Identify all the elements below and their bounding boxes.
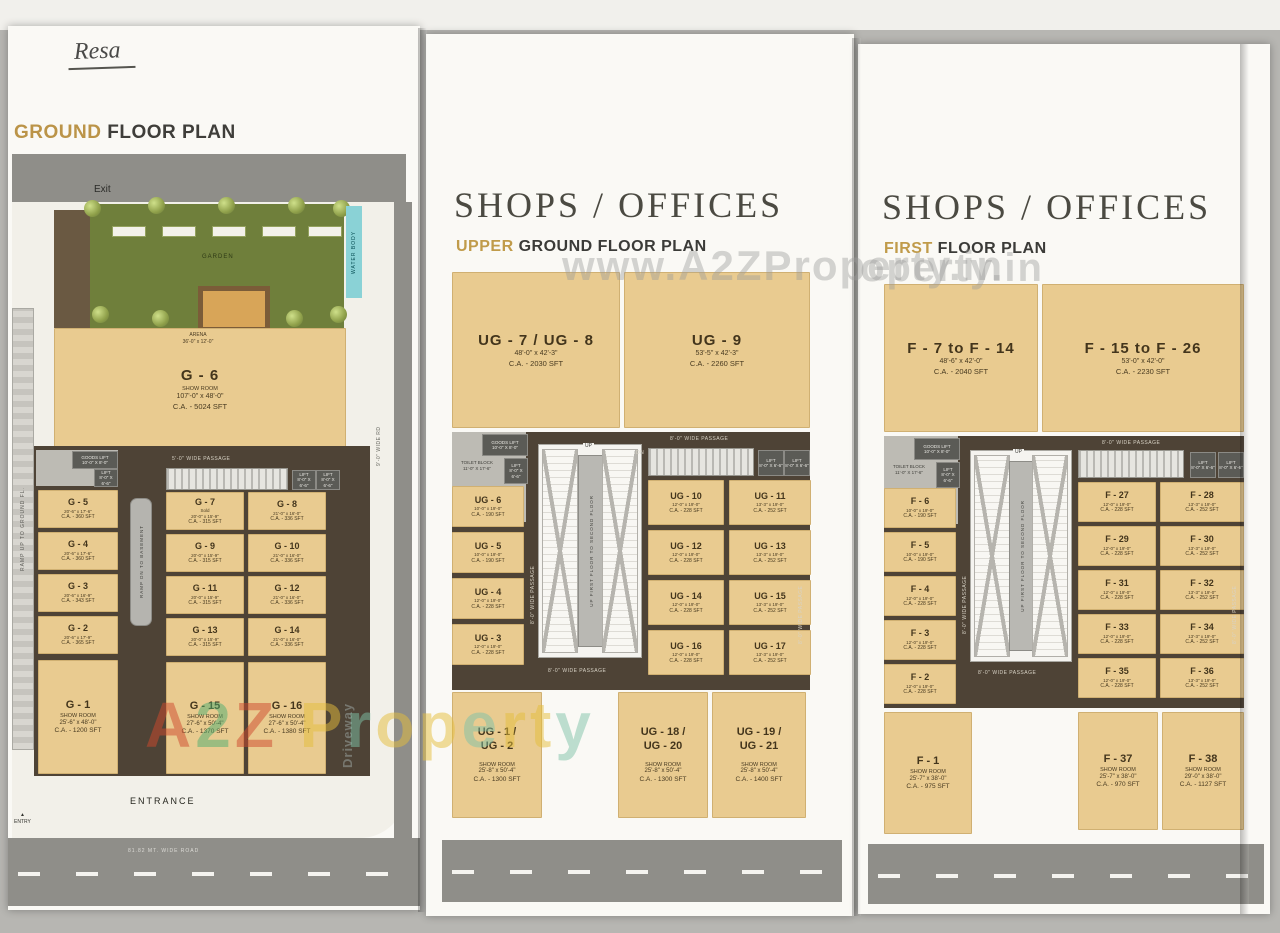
handwritten-note: Resa	[67, 37, 135, 70]
unit-id: G - 6	[181, 367, 219, 386]
entry-label: ▲ENTRY	[14, 812, 31, 826]
first-grid-units: F - 2712'-0" x 19'-0"C.A. - 228 SFTF - 2…	[1078, 482, 1244, 698]
unit-area: C.A. - 252 SFT	[753, 608, 786, 614]
unit-ug9: UG - 9 53'-5" x 42'-3" C.A. - 2260 SFT	[624, 272, 810, 428]
unit-ug-6: UG - 610'-0" x 19'-0"C.A. - 190 SFT	[452, 486, 524, 527]
unit-g-9: G - 920'-0" x 15'-9"C.A. - 315 SFT	[166, 534, 244, 572]
unit-uid: F - 31	[1105, 578, 1129, 589]
unit-area: C.A. - 228 SFT	[1100, 639, 1133, 645]
tree-icon	[286, 310, 303, 327]
unit-sub: SHOW ROOM	[60, 713, 96, 720]
unit-area: C.A. - 190 SFT	[471, 512, 504, 518]
unit-g-14: G - 1421'-0" x 16'-0"C.A. - 336 SFT	[248, 618, 326, 656]
bench	[162, 226, 196, 237]
unit-g-3: G - 320'-6" x 16'-9"C.A. - 343 SFT	[38, 574, 118, 612]
unit-area: C.A. - 228 SFT	[669, 508, 702, 514]
unit-uid: G - 2	[68, 623, 88, 634]
unit-area: C.A. - 360 SFT	[61, 556, 94, 562]
escalator	[1078, 450, 1184, 478]
lift: LIFT 8'-0" X 6'-6"	[94, 469, 118, 487]
unit-id2: UG - 20	[644, 740, 683, 754]
unit-area: C.A. - 252 SFT	[753, 658, 786, 664]
unit-area: C.A. - 975 SFT	[906, 783, 949, 791]
unit-area: C.A. - 1300 SFT	[474, 776, 521, 784]
unit-uid: G - 9	[195, 541, 215, 552]
unit-area: C.A. - 252 SFT	[1185, 551, 1218, 557]
unit-dims: 48'-6" x 42'-0"	[939, 358, 982, 367]
unit-area: C.A. - 252 SFT	[1185, 595, 1218, 601]
unit-uid: F - 35	[1105, 666, 1129, 677]
bench	[212, 226, 246, 237]
unit-uid: G - 10	[274, 541, 299, 552]
unit-g6: G - 6 SHOW ROOM 107'-0" x 48'-0" C.A. - …	[54, 328, 346, 450]
unit-area: C.A. - 336 SFT	[270, 642, 303, 648]
up-label: UP	[1013, 449, 1024, 455]
unit-uid: UG - 4	[475, 587, 502, 598]
unit-uid: UG - 10	[670, 491, 702, 502]
unit-f-5: F - 510'-0" x 19'-0"C.A. - 190 SFT	[884, 532, 956, 572]
first-floor-panel: SHOPS / OFFICES FIRST FLOOR PLAN F - 7 t…	[858, 44, 1270, 914]
unit-ug19-ug21: UG - 19 / UG - 21 SHOW ROOM 25'-8" x 50'…	[712, 692, 806, 818]
unit-area: C.A. - 336 SFT	[270, 600, 303, 606]
unit-area: C.A. - 228 SFT	[669, 558, 702, 564]
unit-f-36: F - 3613'-3" x 19'-0"C.A. - 252 SFT	[1160, 658, 1244, 698]
exit-label: Exit	[94, 184, 111, 195]
road-dashes	[878, 874, 1254, 878]
unit-uid: G - 4	[68, 539, 88, 550]
lift: LIFT 8'-0" X 6'-6"	[316, 470, 340, 490]
road-label: 81.82 MT. WIDE ROAD	[128, 848, 199, 854]
upper-grid-units: UG - 1012'-0" x 19'-0"C.A. - 228 SFTUG -…	[648, 480, 811, 675]
passage-label: 8'-0" WIDE PASSAGE	[1102, 440, 1160, 446]
unit-area: C.A. - 2030 SFT	[509, 359, 563, 368]
unit-uid: F - 28	[1190, 490, 1214, 501]
unit-area: C.A. - 1400 SFT	[736, 776, 783, 784]
unit-uid: G - 5	[68, 497, 88, 508]
unit-g-11: G - 1120'-0" x 15'-9"C.A. - 315 SFT	[166, 576, 244, 614]
unit-area: C.A. - 2230 SFT	[1116, 367, 1170, 376]
unit-id: UG - 7 / UG - 8	[478, 332, 594, 351]
unit-dims: 25'-7" x 38'-0"	[910, 776, 947, 784]
unit-area: C.A. - 228 SFT	[1100, 683, 1133, 689]
garden-area: GARDEN	[90, 204, 344, 330]
unit-area: C.A. - 190 SFT	[903, 513, 936, 519]
unit-area: C.A. - 336 SFT	[270, 558, 303, 564]
unit-area: C.A. - 228 SFT	[1100, 551, 1133, 557]
road-dashes	[18, 872, 410, 876]
unit-g1: G - 1 SHOW ROOM 25'-6" x 48'-0" C.A. - 1…	[38, 660, 118, 774]
bench	[308, 226, 342, 237]
unit-dims: 107'-0" x 48'-0"	[177, 393, 224, 402]
passage-label: 8'-0" WIDE PASSAGE	[978, 670, 1036, 676]
passage-label: 8'-0" WIDE PASSAGE	[530, 504, 536, 624]
unit-uid: UG - 11	[754, 491, 785, 502]
unit-id: UG - 18 /	[641, 726, 686, 740]
brand-letter: t	[530, 689, 555, 761]
side-road-label: 9'-0" WIDE RD	[376, 376, 382, 466]
unit-id: F - 7 to F - 14	[907, 340, 1015, 359]
unit-area: C.A. - 360 SFT	[61, 514, 94, 520]
unit-area: C.A. - 252 SFT	[753, 508, 786, 514]
tree-icon	[330, 306, 347, 323]
unit-area: C.A. - 252 SFT	[1185, 639, 1218, 645]
unit-f-3: F - 312'-0" x 19'-0"C.A. - 228 SFT	[884, 620, 956, 660]
unit-uid: UG - 3	[475, 633, 502, 644]
unit-sub: SHOW ROOM	[645, 762, 681, 769]
stage	[198, 286, 270, 332]
unit-uid: G - 14	[274, 625, 299, 636]
staircase: UP FIRST FLOOR TO SECOND FLOOR UP	[970, 450, 1072, 662]
unit-area: C.A. - 252 SFT	[1185, 683, 1218, 689]
unit-area: C.A. - 2040 SFT	[934, 367, 988, 376]
unit-id: F - 1	[917, 755, 940, 769]
goods-lift: GOODS LIFT 10'-0" X 8'-0"	[72, 451, 118, 469]
unit-ug-4: UG - 412'-0" x 19'-0"C.A. - 228 SFT	[452, 578, 524, 619]
unit-area: C.A. - 228 SFT	[669, 608, 702, 614]
upper-left-units: UG - 610'-0" x 19'-0"C.A. - 190 SFTUG - …	[452, 486, 524, 665]
unit-area: C.A. - 228 SFT	[669, 658, 702, 664]
unit-ug-10: UG - 1012'-0" x 19'-0"C.A. - 228 SFT	[648, 480, 724, 525]
unit-g-7: G - 7Sold20'-0" x 15'-9"C.A. - 315 SFT	[166, 492, 244, 530]
unit-area: C.A. - 228 SFT	[471, 650, 504, 656]
unit-dims: 29'-0" x 38'-0"	[1185, 774, 1222, 782]
unit-f-29: F - 2912'-0" x 19'-0"C.A. - 228 SFT	[1078, 526, 1156, 566]
basement-ramp: RAMP DN TO BASEMENT	[130, 498, 152, 626]
unit-uid: F - 3	[911, 628, 930, 639]
unit-area: C.A. - 228 SFT	[1100, 507, 1133, 513]
unit-area: C.A. - 315 SFT	[188, 519, 221, 525]
unit-dims: 48'-0" x 42'-3"	[514, 350, 557, 359]
ramp-label: UP FIRST FLOOR TO SECOND FLOOR	[1020, 500, 1025, 612]
ground-floor-panel: Resa GROUND FLOOR PLAN Exit GAR	[8, 26, 420, 910]
top-road	[12, 154, 406, 202]
unit-g-5: G - 520'-6" x 17'-6"C.A. - 360 SFT	[38, 490, 118, 528]
brand-letter: P	[300, 689, 347, 761]
unit-uid: F - 27	[1105, 490, 1129, 501]
basement-ramp-label: RAMP DN TO BASEMENT	[139, 525, 144, 598]
road-dashes	[452, 870, 832, 874]
unit-area: C.A. - 1200 SFT	[55, 727, 102, 735]
tree-icon	[152, 310, 169, 327]
unit-uid: F - 2	[911, 672, 930, 683]
goods-lift: GOODS LIFT 10'-0" X 8'-0"	[482, 434, 528, 456]
unit-uid: F - 30	[1190, 534, 1214, 545]
unit-uid: UG - 17	[754, 641, 786, 652]
unit-f-27: F - 2712'-0" x 19'-0"C.A. - 228 SFT	[1078, 482, 1156, 522]
unit-area: C.A. - 315 SFT	[188, 600, 221, 606]
garden-label: GARDEN	[202, 254, 234, 260]
unit-uid: G - 11	[193, 583, 218, 594]
unit-uid: UG - 13	[754, 541, 786, 552]
unit-sub: SHOW ROOM	[1185, 767, 1221, 774]
brand-letter: r	[501, 689, 530, 761]
unit-area: C.A. - 336 SFT	[270, 516, 303, 522]
stair-flight	[1032, 455, 1068, 657]
scanned-floorplan-page: Resa GROUND FLOOR PLAN Exit GAR	[0, 0, 1280, 933]
unit-area: C.A. - 2260 SFT	[690, 359, 744, 368]
subtitle-accent: UPPER	[456, 238, 514, 255]
bench	[112, 226, 146, 237]
escalator	[166, 468, 288, 490]
page-fold	[1240, 44, 1249, 914]
lift: LIFT 8'-0" X 6'-6"	[504, 458, 528, 484]
unit-f-2: F - 212'-0" x 19'-0"C.A. - 228 SFT	[884, 664, 956, 704]
unit-g-4: G - 420'-6" x 17'-6"C.A. - 360 SFT	[38, 532, 118, 570]
unit-uid: F - 34	[1190, 622, 1214, 633]
unit-uid: F - 6	[911, 496, 930, 507]
lift: LIFT 8'-0" X 6'-6"	[936, 462, 960, 488]
first-left-units: F - 610'-0" x 19'-0"C.A. - 190 SFTF - 51…	[884, 488, 956, 704]
unit-g-13: G - 1320'-0" x 15'-9"C.A. - 315 SFT	[166, 618, 244, 656]
left-ramp-label: RAMP UP TO GROUND FL.	[20, 487, 26, 571]
stair-ramp: UP FIRST FLOOR TO SECOND FLOOR	[578, 455, 604, 647]
unit-uid: F - 36	[1190, 666, 1214, 677]
goods-lift: GOODS LIFT 10'-0" X 8'-0"	[914, 438, 960, 460]
unit-dims: 25'-8" x 50'-4"	[479, 768, 516, 776]
bench	[262, 226, 296, 237]
arena-label: ARENA 36'-0" x 12'-0"	[148, 332, 248, 345]
unit-uid: F - 32	[1190, 578, 1214, 589]
unit-ug-11: UG - 1113'-3" x 19'-0"C.A. - 252 SFT	[729, 480, 811, 525]
unit-ug-12: UG - 1212'-0" x 19'-0"C.A. - 228 SFT	[648, 530, 724, 575]
unit-dims: 25'-6" x 48'-0"	[60, 720, 97, 728]
watermark-brand: A2Z Property	[145, 688, 595, 762]
unit-f38: F - 38 SHOW ROOM 29'-0" x 38'-0" C.A. - …	[1162, 712, 1244, 830]
unit-uid: UG - 12	[670, 541, 702, 552]
unit-id: G - 1	[66, 699, 90, 713]
passage-label: 8'-0" WIDE PASSAGE	[798, 524, 804, 644]
stair-flight	[542, 449, 578, 653]
unit-id: UG - 9	[692, 332, 742, 351]
ground-floor-title: GROUND FLOOR PLAN	[14, 122, 236, 144]
unit-area: C.A. - 190 SFT	[471, 558, 504, 564]
unit-dims: 53'-5" x 42'-3"	[695, 350, 738, 359]
toilet-block-label: TOILET BLOCK 11'-0" X 17'-6"	[453, 460, 501, 472]
brand-letter: p	[418, 689, 461, 761]
unit-ug-5: UG - 510'-0" x 19'-0"C.A. - 190 SFT	[452, 532, 524, 573]
stair-flight	[974, 455, 1010, 657]
stair-flight	[602, 449, 638, 653]
unit-area: C.A. - 228 SFT	[471, 604, 504, 610]
unit-uid: F - 4	[911, 584, 930, 595]
unit-area: C.A. - 228 SFT	[1100, 595, 1133, 601]
unit-uid: G - 3	[68, 581, 88, 592]
unit-dims: 25'-8" x 50'-4"	[645, 768, 682, 776]
passage-label: 8'-0" WIDE PASSAGE	[962, 514, 968, 634]
dn-label: DN	[636, 450, 644, 456]
unit-uid: UG - 16	[670, 641, 702, 652]
unit-f1: F - 1 SHOW ROOM 25'-7" x 38'-0" C.A. - 9…	[884, 712, 972, 834]
unit-f-6: F - 610'-0" x 19'-0"C.A. - 190 SFT	[884, 488, 956, 528]
unit-uid: G - 8	[277, 499, 297, 510]
unit-area: C.A. - 5024 SFT	[173, 402, 227, 411]
watermark-url-fragment: operty.in	[860, 246, 1044, 291]
tree-icon	[288, 197, 305, 214]
brand-letter: o	[375, 689, 418, 761]
lift: LIFT 8'-0" X 6'-6"	[292, 470, 316, 490]
shops-offices-title: SHOPS / OFFICES	[882, 186, 1211, 228]
unit-area: C.A. - 228 SFT	[903, 645, 936, 651]
lift: LIFT 8'-0" X 6'-6"	[784, 450, 810, 476]
title-accent: GROUND	[14, 122, 101, 143]
unit-ug18-ug20: UG - 18 / UG - 20 SHOW ROOM 25'-8" x 50'…	[618, 692, 708, 818]
unit-area: C.A. - 365 SFT	[61, 640, 94, 646]
unit-f-4: F - 412'-0" x 19'-0"C.A. - 228 SFT	[884, 576, 956, 616]
unit-g-12: G - 1221'-0" x 16'-0"C.A. - 336 SFT	[248, 576, 326, 614]
unit-f37: F - 37 SHOW ROOM 25'-7" x 38'-0" C.A. - …	[1078, 712, 1158, 830]
unit-uid: F - 29	[1105, 534, 1129, 545]
passage-label: 8'-0" WIDE PASSAGE	[1232, 524, 1238, 644]
unit-ug-3: UG - 312'-0" x 19'-0"C.A. - 228 SFT	[452, 624, 524, 665]
tree-icon	[84, 200, 101, 217]
ramp-label: UP FIRST FLOOR TO SECOND FLOOR	[589, 495, 594, 607]
unit-dims: 25'-7" x 38'-0"	[1100, 774, 1137, 782]
up-label: UP	[583, 443, 594, 449]
brand-letter: r	[346, 689, 375, 761]
unit-g-2: G - 220'-6" x 17'-9"C.A. - 365 SFT	[38, 616, 118, 654]
unit-uid: F - 5	[911, 540, 930, 551]
unit-area: C.A. - 315 SFT	[188, 642, 221, 648]
passage-label: 8'-0" WIDE PASSAGE	[548, 668, 606, 674]
unit-uid: UG - 14	[670, 591, 702, 602]
unit-area: C.A. - 1127 SFT	[1180, 781, 1226, 789]
unit-f-33: F - 3312'-0" x 19'-0"C.A. - 228 SFT	[1078, 614, 1156, 654]
unit-id: UG - 19 /	[737, 726, 782, 740]
unit-f15-f26: F - 15 to F - 26 53'-0" x 42'-0" C.A. - …	[1042, 284, 1244, 432]
tree-icon	[218, 197, 235, 214]
water-body: WATER BODY	[346, 206, 362, 298]
unit-id: F - 15 to F - 26	[1085, 340, 1202, 359]
unit-area: C.A. - 252 SFT	[753, 558, 786, 564]
unit-dims: 25'-8" x 50'-4"	[741, 768, 778, 776]
garden-side-block	[54, 210, 90, 328]
title-rest: FLOOR PLAN	[101, 122, 235, 143]
unit-g-10: G - 1021'-0" x 16'-0"C.A. - 336 SFT	[248, 534, 326, 572]
staircase: UP FIRST FLOOR TO SECOND FLOOR UP	[538, 444, 642, 658]
brand-letter: Z	[235, 689, 278, 761]
unit-sub: SHOW ROOM	[741, 762, 777, 769]
unit-uid: G - 13	[192, 625, 217, 636]
unit-id: F - 37	[1104, 753, 1133, 767]
tree-icon	[148, 197, 165, 214]
entrance-label: ENTRANCE	[130, 796, 196, 806]
unit-uid: UG - 5	[475, 541, 502, 552]
unit-id2: UG - 21	[740, 740, 779, 754]
lift: LIFT 8'-0" X 6'-6"	[758, 450, 784, 476]
brand-letter: A	[145, 689, 195, 761]
unit-uid: G - 12	[274, 583, 299, 594]
brand-letter: e	[461, 689, 501, 761]
unit-uid: F - 33	[1105, 622, 1129, 633]
unit-f-28: F - 2813'-3" x 19'-0"C.A. - 252 SFT	[1160, 482, 1244, 522]
passage-label: 5'-0" WIDE PASSAGE	[172, 456, 230, 462]
unit-area: C.A. - 228 SFT	[903, 689, 936, 695]
toilet-block-label: TOILET BLOCK 11'-0" X 17'-6"	[885, 464, 933, 476]
unit-g-8: G - 821'-0" x 16'-0"C.A. - 336 SFT	[248, 492, 326, 530]
brand-letter: y	[555, 689, 595, 761]
brand-letter: 2	[195, 689, 235, 761]
unit-sub: SHOW ROOM	[910, 769, 946, 776]
unit-uid: UG - 6	[475, 495, 502, 506]
unit-sub: SHOW ROOM	[1100, 767, 1136, 774]
unit-ug-16: UG - 1612'-0" x 19'-0"C.A. - 228 SFT	[648, 630, 724, 675]
lift: LIFT 8'-0" X 6'-6"	[1190, 452, 1216, 478]
unit-uid: G - 7	[195, 497, 215, 508]
brand-letter	[278, 689, 300, 761]
unit-area: C.A. - 343 SFT	[61, 598, 94, 604]
unit-ug-14: UG - 1412'-0" x 19'-0"C.A. - 228 SFT	[648, 580, 724, 625]
passage-label: 8'-0" WIDE PASSAGE	[670, 436, 728, 442]
shops-offices-title: SHOPS / OFFICES	[454, 184, 783, 226]
ground-left-units: G - 520'-6" x 17'-6"C.A. - 360 SFTG - 42…	[38, 490, 118, 654]
unit-uid: UG - 15	[754, 591, 786, 602]
unit-f7-f14: F - 7 to F - 14 48'-6" x 42'-0" C.A. - 2…	[884, 284, 1038, 432]
unit-area: C.A. - 315 SFT	[188, 558, 221, 564]
unit-ug7-ug8: UG - 7 / UG - 8 48'-0" x 42'-3" C.A. - 2…	[452, 272, 620, 428]
unit-f-35: F - 3512'-0" x 19'-0"C.A. - 228 SFT	[1078, 658, 1156, 698]
unit-area: C.A. - 1300 SFT	[640, 776, 687, 784]
page-fold	[418, 28, 427, 912]
unit-sub: SHOW ROOM	[479, 762, 515, 769]
unit-dims: 53'-0" x 42'-0"	[1121, 358, 1164, 367]
tree-icon	[92, 306, 109, 323]
escalator	[648, 448, 754, 476]
unit-id: F - 38	[1189, 753, 1218, 767]
entry-text: ENTRY	[14, 819, 31, 825]
unit-f-31: F - 3112'-0" x 19'-0"C.A. - 228 SFT	[1078, 570, 1156, 610]
unit-area: C.A. - 228 SFT	[903, 601, 936, 607]
unit-area: C.A. - 252 SFT	[1185, 507, 1218, 513]
left-ramp: RAMP UP TO GROUND FL.	[12, 308, 34, 750]
upper-ground-panel: SHOPS / OFFICES UPPER GROUND FLOOR PLAN …	[426, 34, 854, 916]
unit-area: C.A. - 970 SFT	[1096, 781, 1139, 789]
unit-area: C.A. - 190 SFT	[903, 557, 936, 563]
unit-sub: SHOW ROOM	[182, 386, 218, 393]
page-fold	[852, 38, 861, 916]
ground-grid-units: G - 7Sold20'-0" x 15'-9"C.A. - 315 SFTG …	[166, 492, 326, 656]
